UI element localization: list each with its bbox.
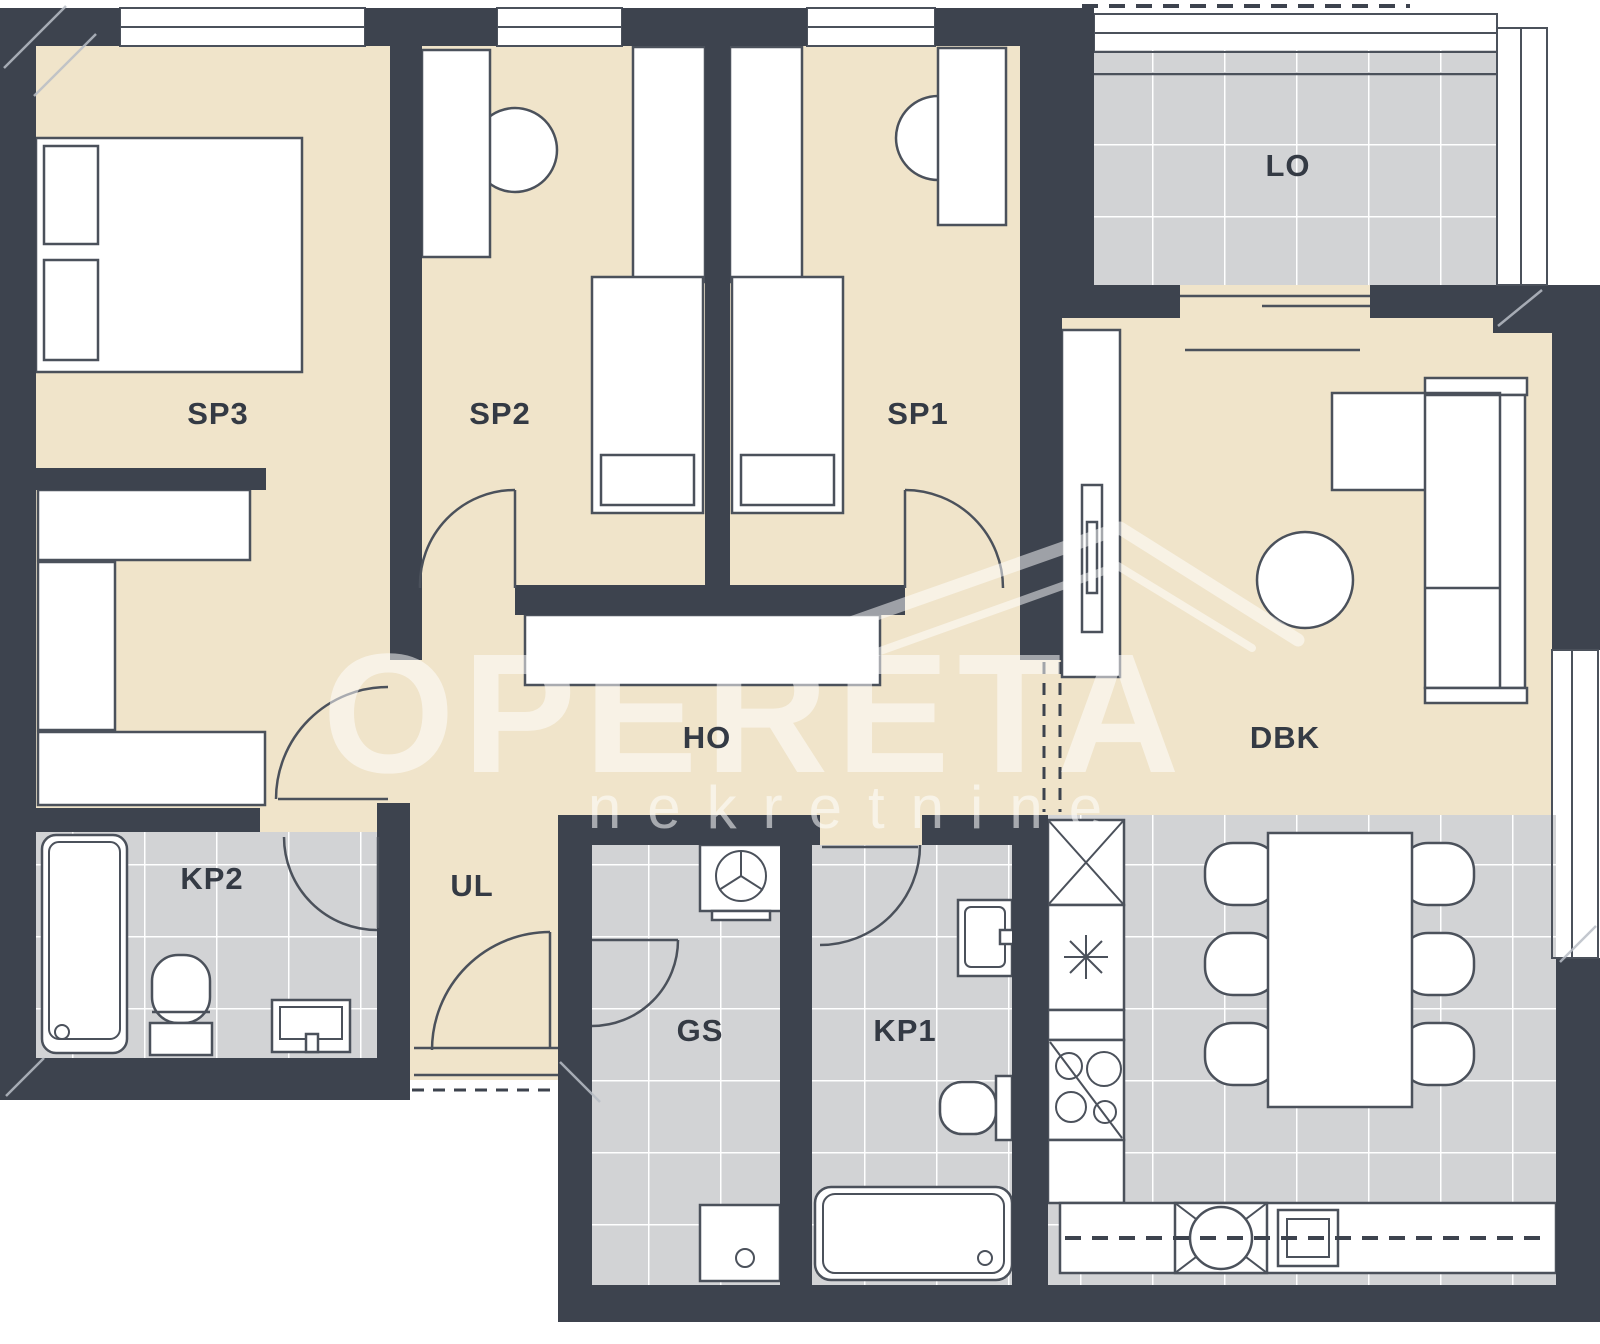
kp1-sink-tap: [1000, 930, 1014, 944]
room-label-ul: UL: [450, 868, 493, 903]
coffee-table: [1257, 532, 1353, 628]
sp2-desk: [422, 50, 490, 257]
sp1-wardrobe: [730, 47, 802, 282]
room-label-dbk: DBK: [1250, 720, 1320, 755]
kp1-toilet-bowl: [940, 1082, 996, 1134]
wall-right-lower: [1556, 958, 1600, 1285]
wall-bottom: [558, 1285, 1600, 1322]
kp2-bathtub: [42, 835, 127, 1053]
outside-area: [0, 1100, 558, 1344]
wall-gs-kp1: [780, 845, 812, 1285]
room-label-sp3: SP3: [187, 396, 249, 431]
washing-machine-base: [712, 911, 770, 920]
kp2-sink-tap: [306, 1034, 318, 1052]
sp3-pillow-1: [44, 146, 98, 244]
sp2-wardrobe: [633, 47, 705, 282]
wall-sp3-sp2: [390, 46, 422, 660]
kp1-bathtub: [815, 1187, 1012, 1280]
wall-sp3-closet-stub: [36, 468, 266, 490]
room-label-ho: HO: [683, 720, 732, 755]
sofa-body: [1425, 395, 1525, 688]
kitchen-counter-seg2: [1048, 1140, 1124, 1203]
wall-kp2-ul: [377, 803, 410, 1058]
wall-lo-corner: [1493, 285, 1552, 333]
wall-bedrooms-hall: [515, 585, 905, 615]
wall-gs-left: [558, 815, 592, 1322]
room-label-sp2: SP2: [469, 396, 531, 431]
kp1-toilet-tank: [996, 1076, 1012, 1140]
sofa-armrest: [1425, 688, 1527, 703]
watermark-tagline: nekretnine: [588, 774, 1128, 841]
kp2-toilet-tank: [150, 1023, 212, 1055]
sp1-pillow: [741, 455, 834, 505]
wall-kp1-kitchen: [1012, 845, 1048, 1285]
sp2-pillow: [601, 455, 694, 505]
gs-shower-tray: [700, 1205, 780, 1281]
wall-bottom-left: [0, 1058, 410, 1100]
wall-sp2-sp1: [705, 46, 730, 585]
sp3-pillow-2: [44, 260, 98, 360]
sp3-wardrobe-bottom: [38, 732, 265, 805]
freezer-symbol: [1064, 935, 1108, 979]
kitchen-counter-seg: [1048, 1010, 1124, 1040]
wall-left: [0, 8, 36, 1100]
wall-right-upper: [1552, 285, 1600, 650]
floor-plan: OPERETA nekretnine SP3 SP2 SP1 LO HO DBK…: [0, 0, 1600, 1344]
wall-lo-left: [1062, 8, 1094, 285]
sp3-wardrobe-top: [38, 490, 250, 560]
room-label-kp1: KP1: [873, 1013, 936, 1048]
room-label-sp1: SP1: [887, 396, 949, 431]
wall-lo-dbk-left: [1062, 285, 1180, 318]
floor-plan-page: OPERETA nekretnine SP3 SP2 SP1 LO HO DBK…: [0, 0, 1600, 1344]
room-label-kp2: KP2: [180, 861, 243, 896]
dining-table: [1268, 833, 1412, 1107]
room-label-gs: GS: [677, 1013, 724, 1048]
room-label-lo: LO: [1265, 148, 1310, 183]
wall-kp2-top: [36, 808, 260, 832]
sp1-desk: [938, 48, 1006, 225]
sp3-wardrobe-side: [38, 562, 115, 730]
